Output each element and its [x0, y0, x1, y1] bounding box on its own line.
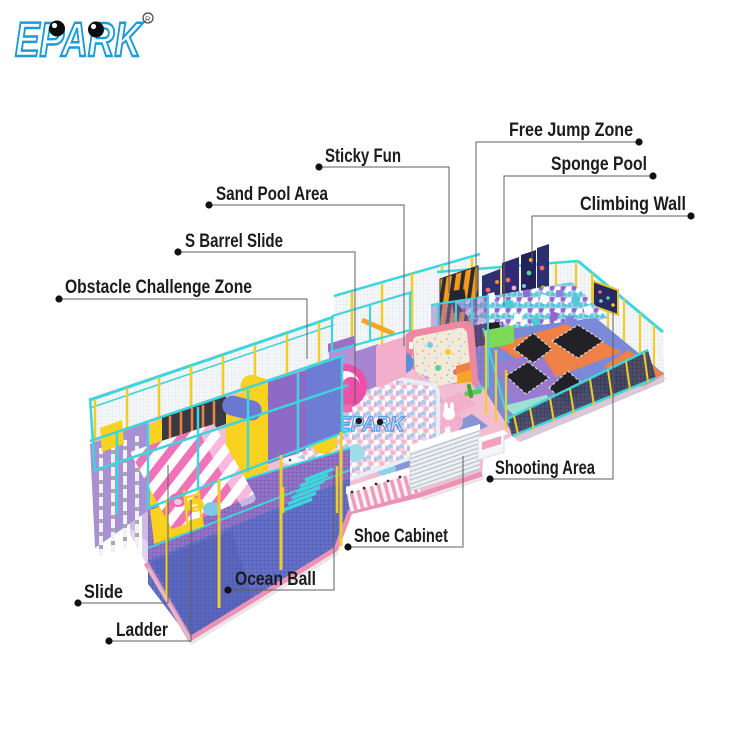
svg-text:R: R: [145, 15, 151, 24]
svg-text:EPARK: EPARK: [338, 413, 406, 436]
svg-text:Ladder: Ladder: [116, 620, 168, 641]
svg-text:Shoe Cabinet: Shoe Cabinet: [354, 526, 449, 547]
svg-text:Shooting Area: Shooting Area: [495, 458, 595, 479]
svg-text:Slide: Slide: [84, 582, 123, 603]
svg-text:Obstacle Challenge Zone: Obstacle Challenge Zone: [65, 277, 252, 298]
svg-text:Free Jump Zone: Free Jump Zone: [509, 120, 633, 141]
svg-text:Ocean Ball: Ocean Ball: [235, 569, 316, 590]
svg-text:Climbing Wall: Climbing Wall: [580, 194, 686, 215]
svg-text:EPARK: EPARK: [15, 14, 144, 67]
svg-text:Sponge Pool: Sponge Pool: [551, 154, 647, 175]
svg-text:Sticky Fun: Sticky Fun: [325, 146, 401, 167]
svg-text:Sand Pool Area: Sand Pool Area: [216, 184, 328, 205]
svg-text:S Barrel Slide: S Barrel Slide: [185, 231, 283, 252]
